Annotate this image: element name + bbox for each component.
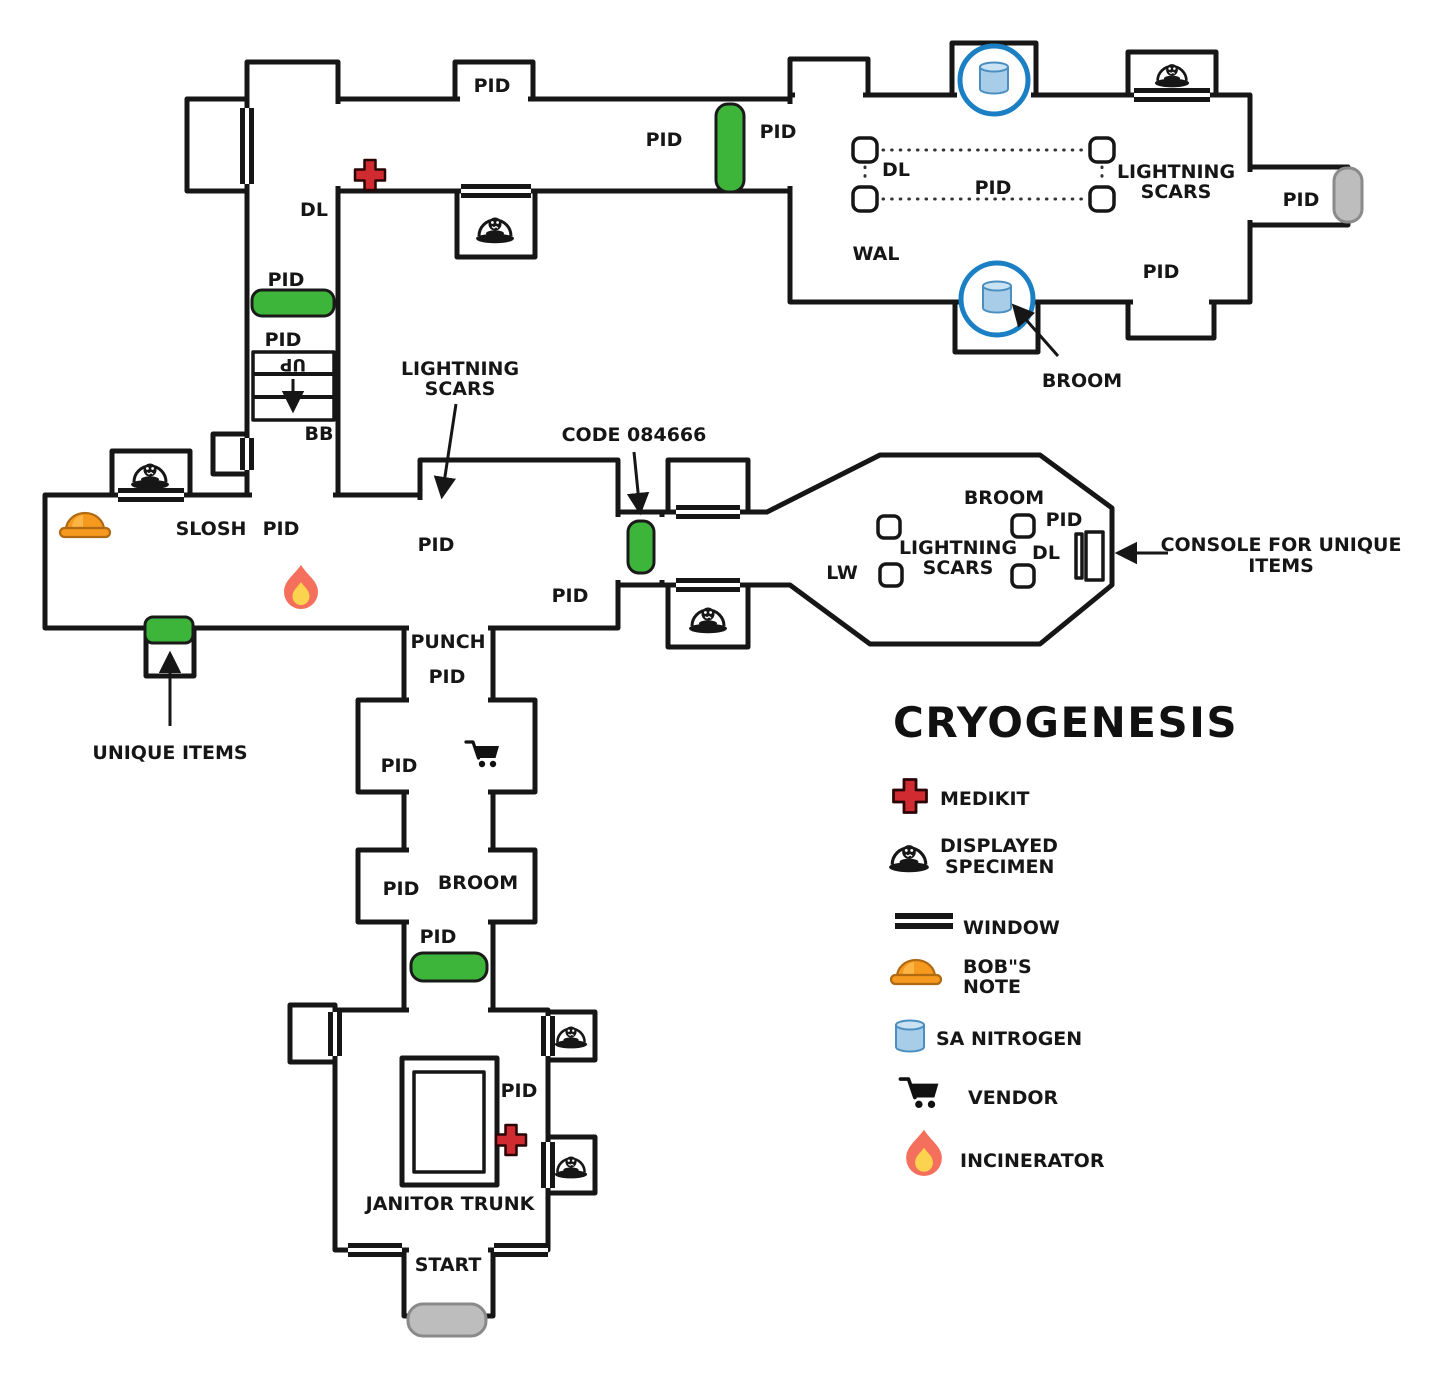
window <box>541 1016 555 1056</box>
label-pid: PID <box>383 878 420 900</box>
label-pid: PID <box>760 121 797 143</box>
window <box>676 578 740 592</box>
label-lightning-scars: SCARS <box>1141 181 1212 203</box>
label-broom: BROOM <box>964 487 1044 509</box>
label-pid: PID <box>268 269 305 291</box>
door-green-tall-corridor <box>252 290 334 316</box>
legend-label-medikit: MEDIKIT <box>940 788 1030 810</box>
label-broom: BROOM <box>1042 370 1122 392</box>
janitor-trunk-box <box>402 1058 497 1185</box>
corridor-mid-south <box>404 792 493 850</box>
window <box>541 1142 555 1188</box>
door-gray-start <box>408 1304 486 1336</box>
label-code: CODE 084666 <box>562 424 707 446</box>
sa-nitrogen-icon <box>980 63 1008 94</box>
label-pid: PID <box>975 177 1012 199</box>
window <box>676 505 740 519</box>
vendor-icon <box>900 1079 938 1108</box>
label-pid: PID <box>429 666 466 688</box>
cryogenesis-level-map: UP <box>0 0 1440 1375</box>
label-bb: BB <box>305 423 334 445</box>
label-dl: DL <box>300 199 328 221</box>
label-lightning-scars: LIGHTNING <box>899 537 1017 559</box>
window <box>1134 88 1210 102</box>
label-console: ITEMS <box>1248 555 1314 577</box>
arrow-code <box>634 452 640 512</box>
door-green-code <box>628 521 654 573</box>
label-pid: PID <box>265 329 302 351</box>
label-pid: PID <box>474 75 511 97</box>
label-lightning-scars: LIGHTNING <box>401 358 519 380</box>
label-lightning-scars: LIGHTNING <box>1117 161 1235 183</box>
window <box>348 1243 402 1257</box>
sa-nitrogen-icon <box>896 1021 924 1052</box>
label-pid: PID <box>1143 261 1180 283</box>
label-pid: PID <box>1046 509 1083 531</box>
window <box>494 1243 548 1257</box>
label-pid: PID <box>418 534 455 556</box>
door-green-unique-items <box>145 617 193 643</box>
label-pid: PID <box>646 129 683 151</box>
console-unique-items <box>1076 532 1103 580</box>
bobs-note-icon <box>891 960 941 984</box>
room-slosh <box>45 495 420 628</box>
door-gray-right-exit <box>1334 168 1362 222</box>
alcove-window-mid-upper <box>668 460 748 512</box>
medikit-icon <box>894 780 927 813</box>
window <box>240 438 254 470</box>
label-broom: BROOM <box>438 872 518 894</box>
floorplan-walls <box>45 43 1348 1316</box>
door-green-top-corridor <box>716 104 744 192</box>
legend-label-displayed-specimen: SPECIMEN <box>945 856 1054 878</box>
incinerator-icon <box>906 1130 942 1176</box>
sa-nitrogen-icon <box>983 282 1011 313</box>
label-start: START <box>415 1254 482 1276</box>
label-pid: PID <box>501 1080 538 1102</box>
window <box>118 488 184 502</box>
label-pid: PID <box>381 755 418 777</box>
legend-label-bobs-note: NOTE <box>963 976 1021 998</box>
legend-label-window: WINDOW <box>963 917 1060 939</box>
label-punch: PUNCH <box>410 631 485 653</box>
door-green-janitor <box>411 953 487 981</box>
alcove-bottom-right <box>1128 302 1214 338</box>
label-wal: WAL <box>853 243 900 265</box>
legend: CRYOGENESIS MEDIKIT DISPLAYED SPECIMEN W… <box>889 698 1238 1176</box>
window <box>461 184 531 198</box>
label-slosh: SLOSH <box>176 518 247 540</box>
room-topright-bump <box>790 59 868 95</box>
legend-title: CRYOGENESIS <box>893 698 1238 747</box>
stairs-up-label: UP <box>280 354 306 374</box>
displayed-specimen-icon <box>889 845 929 872</box>
room-vendor <box>358 700 535 792</box>
window-icon <box>895 913 953 929</box>
window <box>328 1012 342 1056</box>
label-lw: LW <box>826 562 858 584</box>
label-pid: PID <box>420 926 457 948</box>
label-pid: PID <box>263 518 300 540</box>
map-canvas: UP <box>0 0 1440 1375</box>
legend-label-sa-nitrogen: SA NITROGEN <box>936 1028 1082 1050</box>
legend-label-vendor: VENDOR <box>968 1087 1059 1109</box>
label-dl: DL <box>882 159 910 181</box>
legend-label-incinerator: INCINERATOR <box>960 1150 1105 1172</box>
legend-label-displayed-specimen: DISPLAYED <box>940 835 1058 857</box>
window <box>240 108 254 184</box>
label-pid: PID <box>552 585 589 607</box>
stairs: UP <box>253 352 334 420</box>
alcove-entry-left <box>187 99 247 191</box>
label-unique-items: UNIQUE ITEMS <box>92 742 247 764</box>
label-lightning-scars: SCARS <box>425 378 496 400</box>
legend-label-bobs-note: BOB"S <box>963 956 1032 978</box>
label-dl: DL <box>1032 542 1060 564</box>
label-lightning-scars: SCARS <box>923 557 994 579</box>
label-console: CONSOLE FOR UNIQUE <box>1161 534 1402 556</box>
label-pid: PID <box>1283 189 1320 211</box>
label-janitor-trunk: JANITOR TRUNK <box>364 1193 536 1215</box>
